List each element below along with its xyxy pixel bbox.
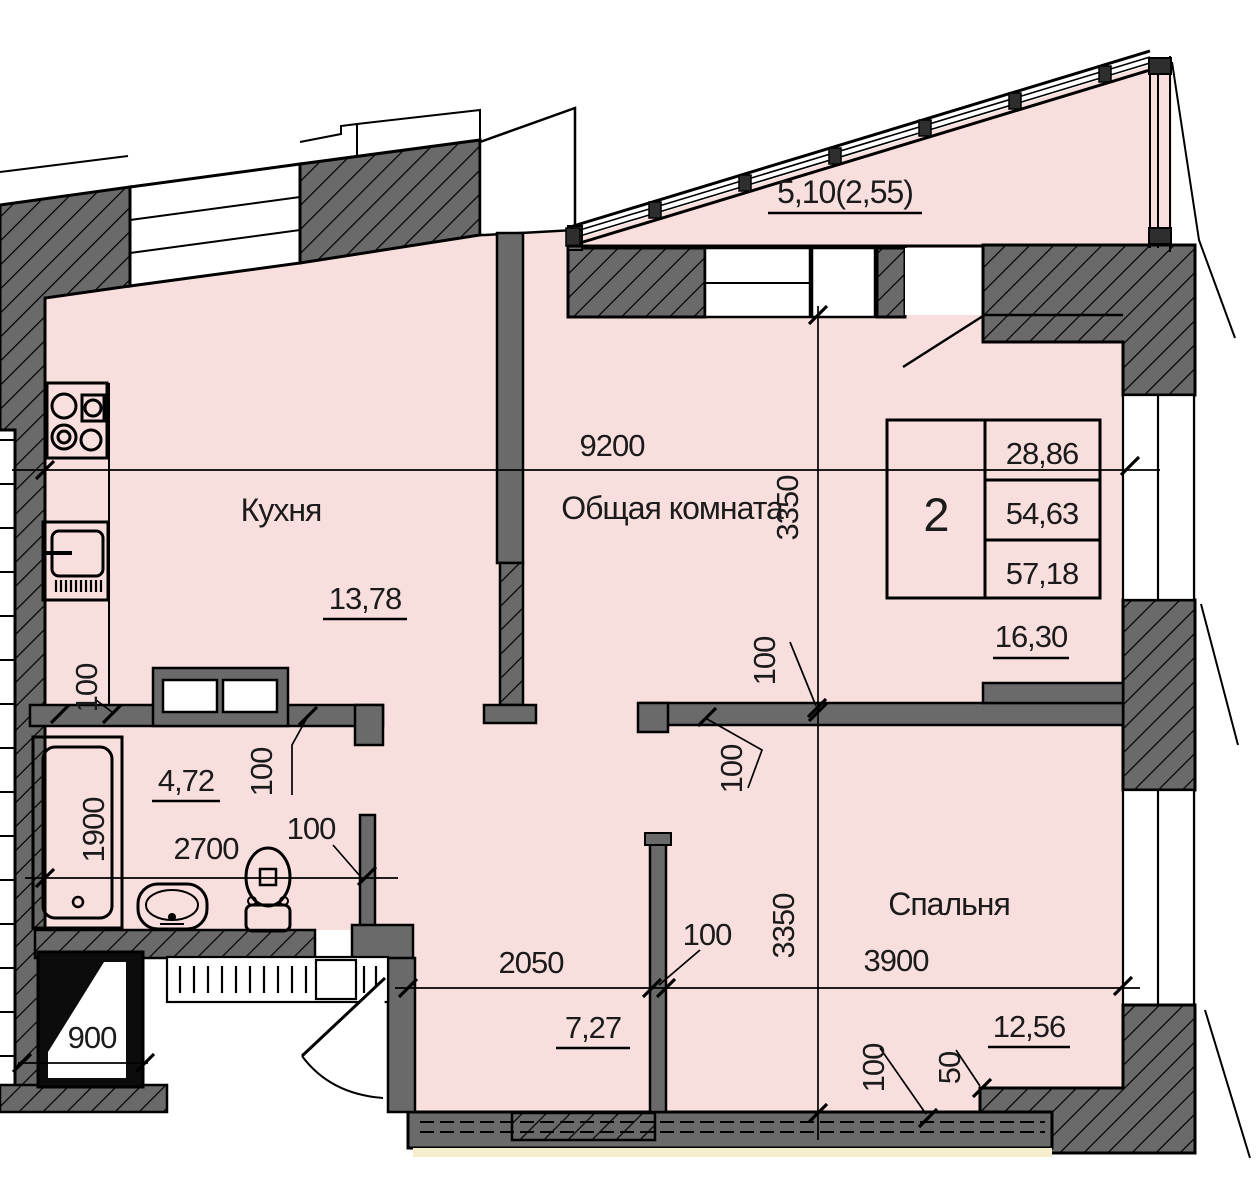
kitchen-label: Кухня (241, 492, 322, 528)
dim-50: 50 (932, 1051, 967, 1084)
closet-strip (167, 957, 388, 1002)
living-room-label: Общая комната (561, 490, 784, 526)
dim-3350-bedroom: 3350 (766, 893, 801, 959)
dim-100-living: 100 (747, 636, 782, 685)
wall-hall-bedroom (650, 835, 666, 1112)
wall-bath-door-tab (355, 705, 383, 745)
wall-kitchen-living-upper (497, 233, 523, 563)
dim-100-bedroom: 100 (856, 1043, 891, 1092)
dim-100-partition: 100 (714, 744, 749, 793)
wall-kitchen-living-footer (484, 705, 536, 723)
dim-3350-living: 3350 (770, 475, 805, 541)
wall-bottom-hatched-pier (512, 1113, 655, 1140)
neighbor-edge-mid (1201, 604, 1238, 745)
dim-100-kitchen: 100 (69, 663, 104, 712)
dim-2050: 2050 (499, 945, 565, 980)
wall-pier-balcony (877, 248, 905, 317)
floor-plan-drawing: 5,10(2,55) 9200 Кухня Общая комната 3350… (0, 0, 1256, 1200)
bathroom-area-label: 4,72 (158, 763, 214, 798)
slab-outline (480, 108, 575, 235)
dim-100-bath: 100 (244, 747, 279, 796)
wall-kitchen-living-lower (500, 563, 523, 705)
window-topleft (130, 164, 300, 286)
bedroom-area-label: 12,56 (993, 1009, 1066, 1044)
parapet-line-2 (357, 110, 480, 142)
table-usable-area: 54,63 (1006, 496, 1079, 531)
wall-hall-left (388, 958, 415, 1112)
dim-900: 900 (68, 1020, 117, 1055)
dim-100-toilet: 100 (287, 811, 336, 846)
dim-100-hall: 100 (683, 917, 732, 952)
balcony-area-label: 5,10(2,55) (777, 174, 913, 210)
parapet-step (300, 124, 357, 156)
vent-duct-1 (163, 680, 217, 712)
neighbor-edge-bottom (1205, 1010, 1250, 1158)
dim-2700: 2700 (174, 831, 240, 866)
kitchen-area-label: 13,78 (329, 581, 402, 616)
table-living-area: 28,86 (1006, 436, 1079, 471)
wall-living-bedroom-pier (983, 683, 1123, 703)
wall-right-mid-block (1123, 600, 1195, 790)
neighbor-glazing-ticks (0, 440, 15, 1056)
window-right-living (1123, 395, 1195, 600)
table-total-area: 57,18 (1006, 556, 1079, 591)
wall-living-bedroom-footer (638, 703, 668, 732)
vent-duct-2 (223, 680, 277, 712)
bedroom-label: Спальня (888, 886, 1010, 922)
balcony-door-opening (905, 248, 983, 315)
dim-9200: 9200 (580, 428, 646, 463)
floor-plan-page: { "plan": { "balcony_area": "5,10(2,55)"… (0, 0, 1256, 1200)
table-room-count: 2 (923, 488, 948, 541)
window-right-bedroom (1123, 790, 1195, 1005)
wall-bottom (408, 1112, 1052, 1148)
summary-area-label: 16,30 (995, 619, 1068, 654)
parapet-line (0, 156, 128, 172)
dim-3900: 3900 (864, 943, 930, 978)
sill-strip (413, 1148, 1052, 1157)
wall-hall-bedroom-cap (645, 833, 671, 845)
dim-1900: 1900 (76, 797, 111, 863)
wall-below-shaft (0, 1085, 167, 1112)
wall-under-balcony-a (568, 248, 705, 317)
hall-area-label: 7,27 (565, 1010, 621, 1045)
balcony-door-sidelight (812, 248, 875, 317)
wall-bath-right-footer (352, 925, 413, 960)
